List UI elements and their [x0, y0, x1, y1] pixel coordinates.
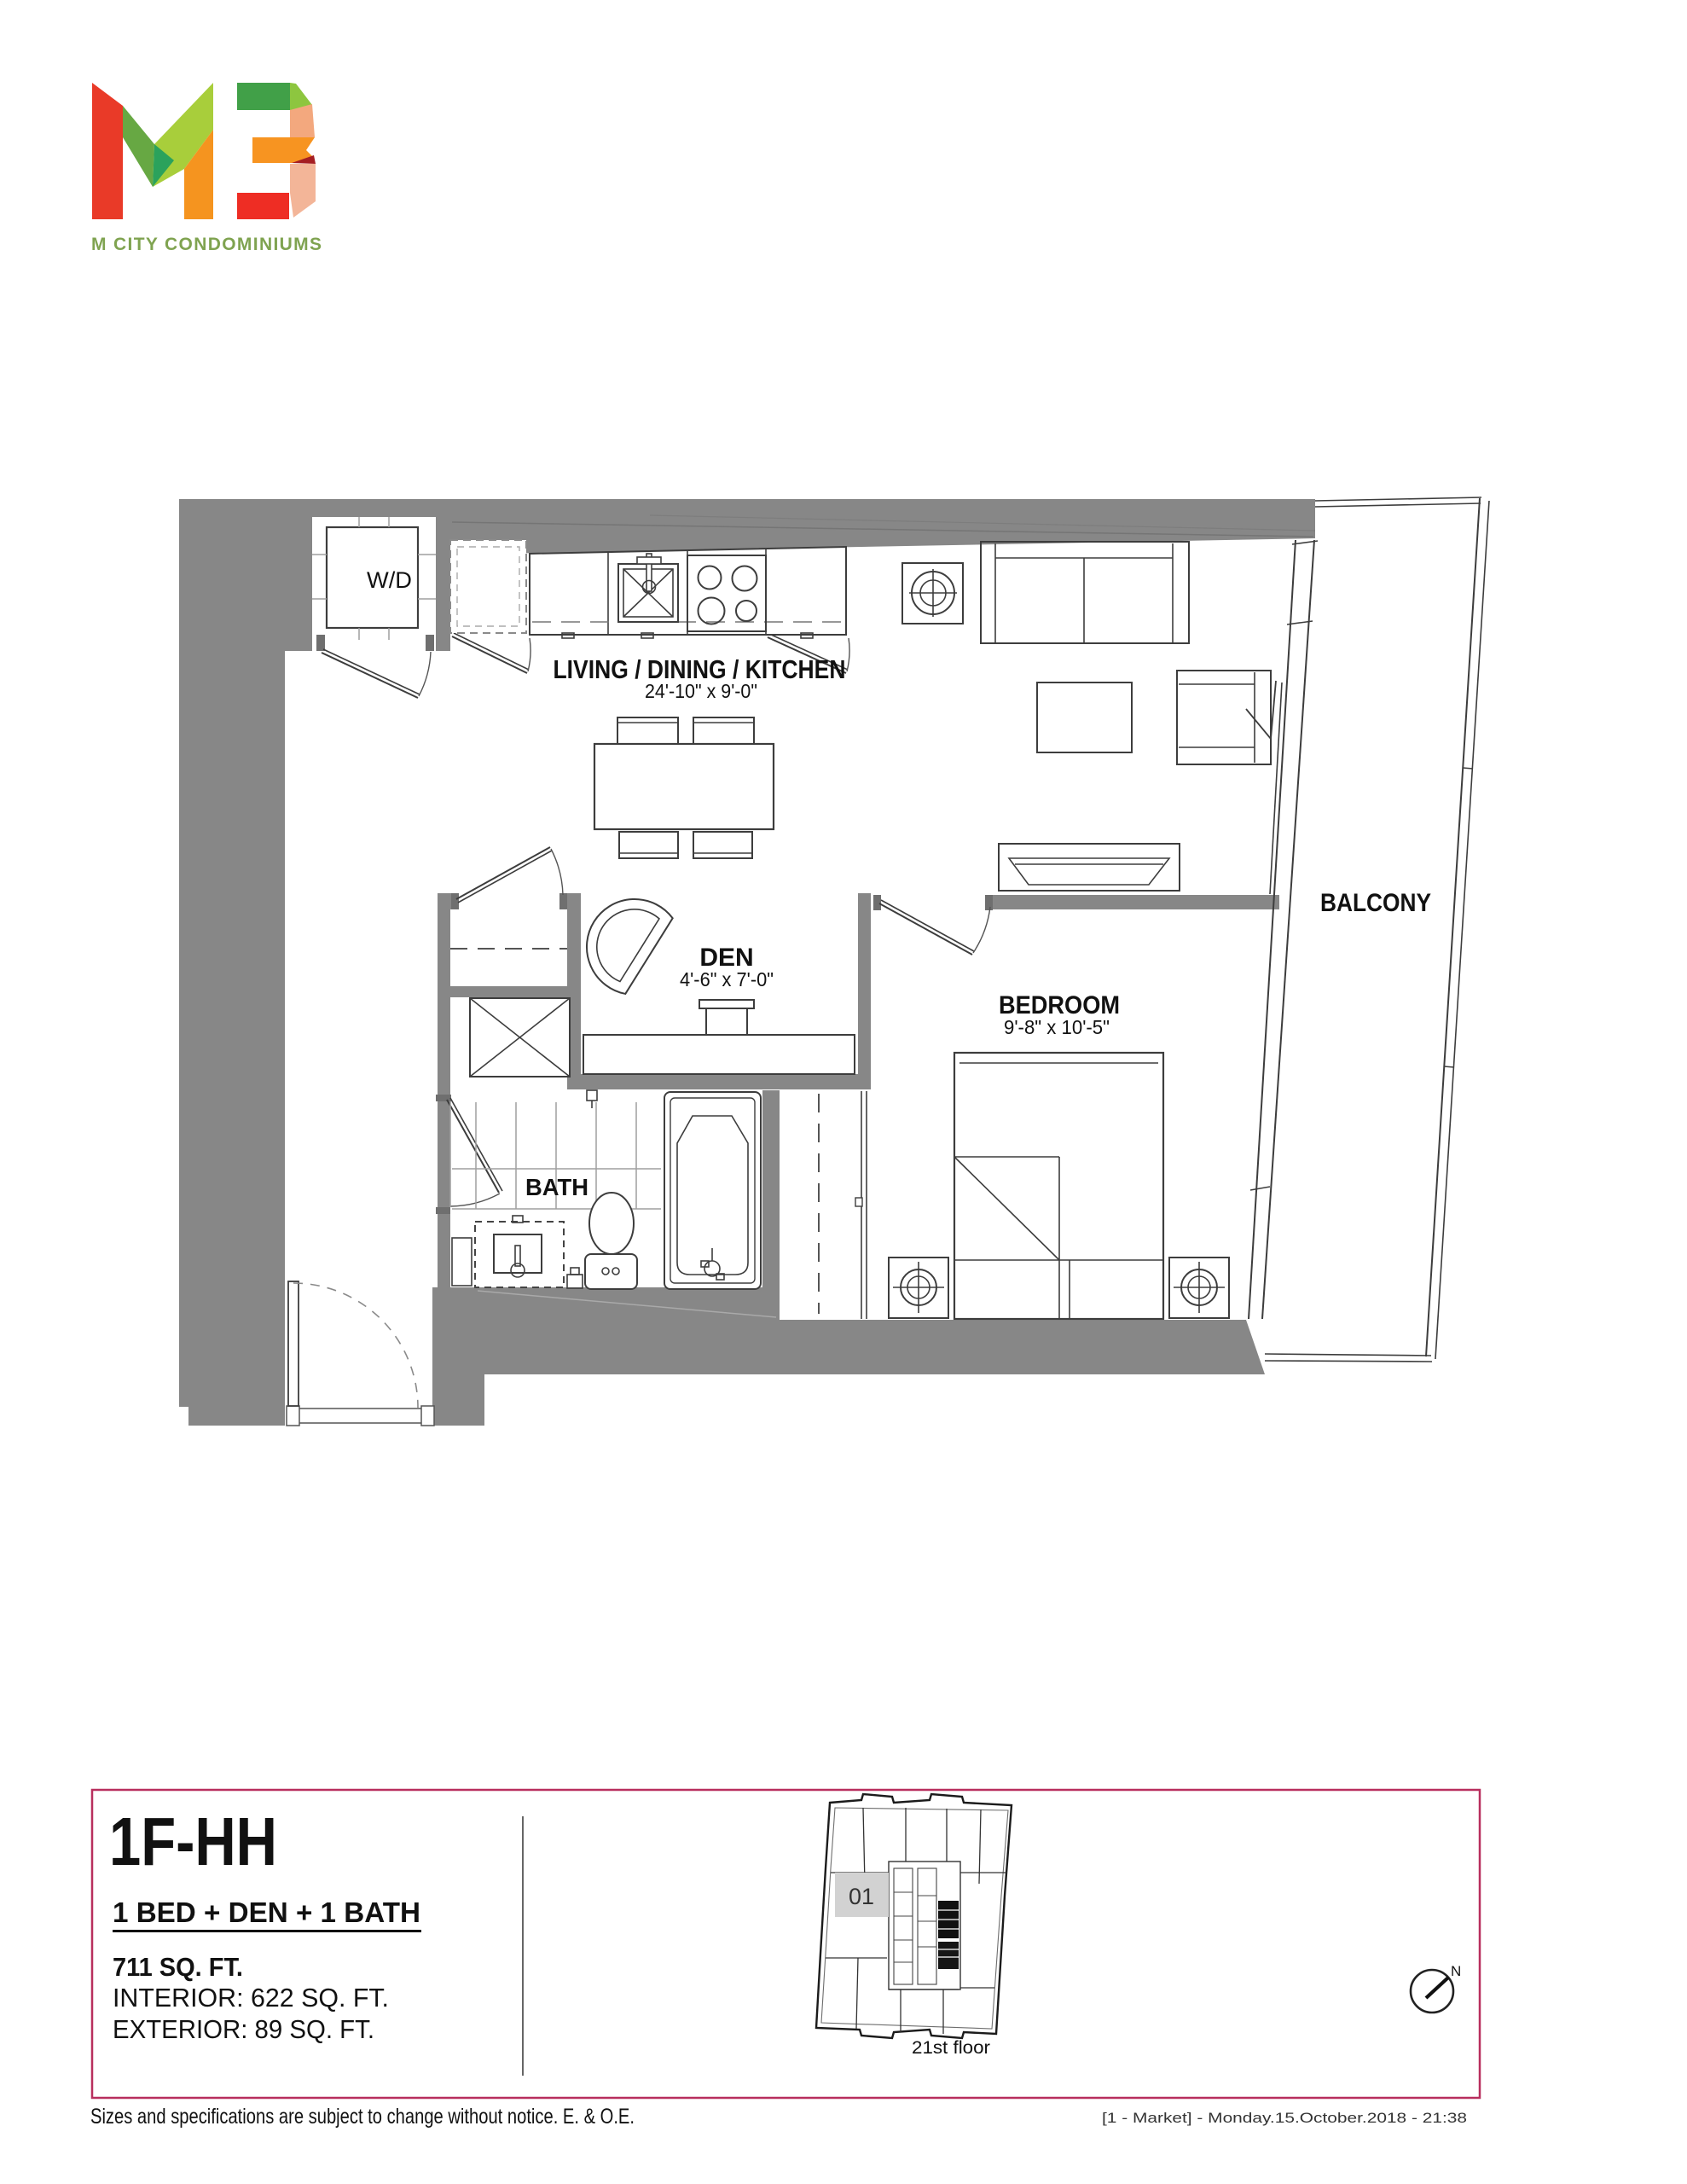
svg-text:W/D: W/D [367, 567, 412, 593]
svg-text:01: 01 [849, 1884, 874, 1909]
svg-text:N: N [1451, 1963, 1461, 1979]
svg-text:M CITY CONDOMINIUMS: M CITY CONDOMINIUMS [91, 235, 322, 254]
svg-text:INTERIOR: 622 SQ. FT.: INTERIOR: 622 SQ. FT. [113, 1983, 389, 2013]
svg-text:9'-8" x 10'-5": 9'-8" x 10'-5" [1004, 1016, 1110, 1038]
svg-text:1F-HH: 1F-HH [109, 1804, 277, 1879]
svg-text:BALCONY: BALCONY [1320, 889, 1431, 917]
svg-text:BATH: BATH [525, 1174, 588, 1200]
svg-text:24'-10" x 9'-0": 24'-10" x 9'-0" [645, 680, 757, 702]
svg-text:EXTERIOR: 89 SQ. FT.: EXTERIOR: 89 SQ. FT. [113, 2014, 374, 2044]
svg-text:[1 - Market] - Monday.15.Oct: [1 - Market] - Monday.15.October.2018 - … [1102, 2110, 1467, 2126]
svg-text:21st floor: 21st floor [912, 2038, 990, 2058]
svg-text:1 BED + DEN + 1 BATH: 1 BED + DEN + 1 BATH [113, 1896, 420, 1928]
svg-text:711 SQ. FT.: 711 SQ. FT. [113, 1952, 243, 1982]
svg-text:4'-6" x 7'-0": 4'-6" x 7'-0" [680, 968, 774, 990]
svg-text:Sizes and specifications are s: Sizes and specifications are subject to … [90, 2105, 635, 2129]
